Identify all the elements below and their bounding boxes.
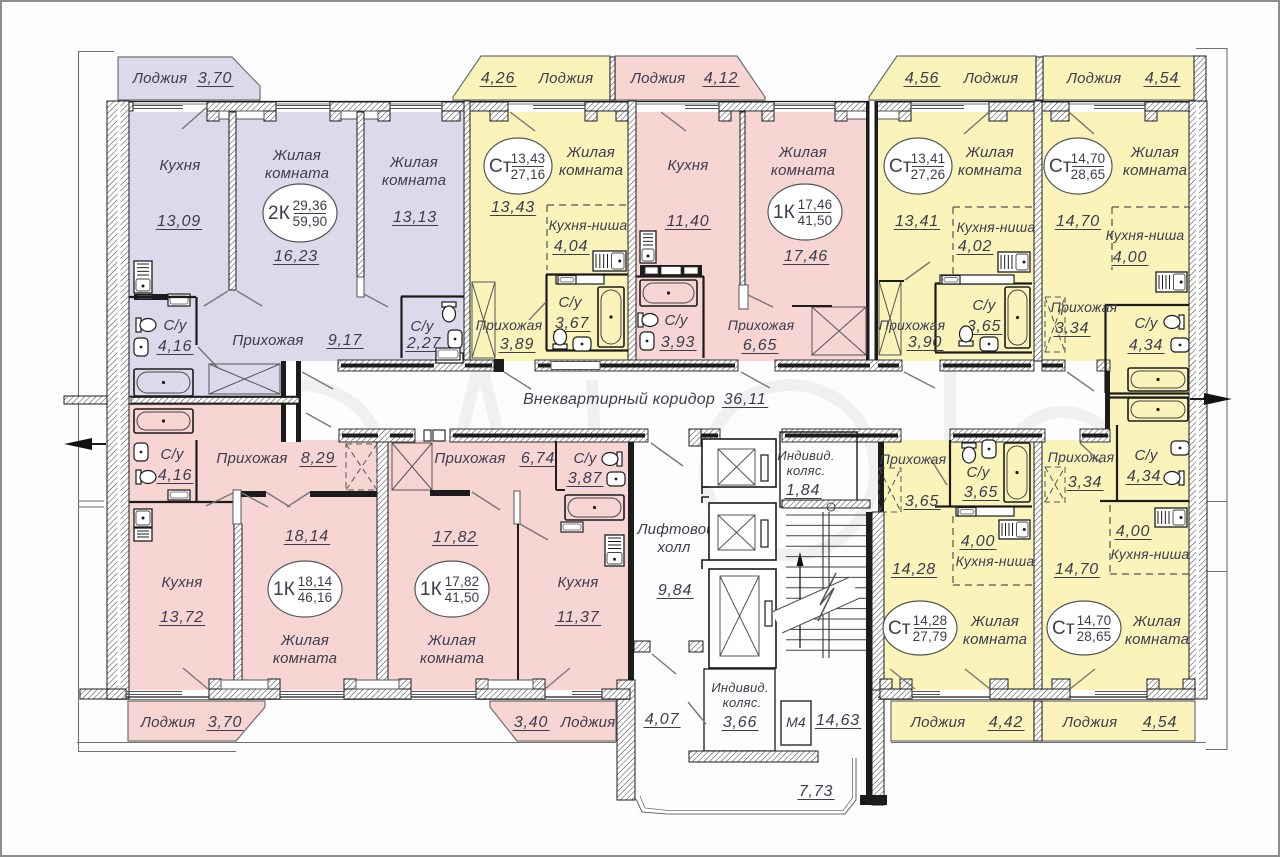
svg-text:Лоджия: Лоджия — [910, 714, 966, 731]
svg-text:4,26: 4,26 — [481, 70, 515, 87]
svg-text:С/у: С/у — [664, 312, 688, 329]
svg-text:3,89: 3,89 — [500, 336, 534, 353]
svg-text:28,65: 28,65 — [1077, 629, 1112, 644]
svg-text:Жилая: Жилая — [1132, 613, 1181, 630]
svg-text:Прихожая: Прихожая — [216, 450, 287, 467]
svg-text:Прихожая: Прихожая — [1048, 449, 1115, 465]
svg-text:комната: комната — [265, 165, 329, 182]
svg-text:Кухня: Кухня — [162, 574, 203, 591]
svg-text:комната: комната — [273, 650, 337, 667]
svg-text:4,07: 4,07 — [645, 711, 680, 728]
svg-text:комната: комната — [559, 162, 623, 179]
svg-text:4,56: 4,56 — [905, 70, 939, 87]
svg-text:1К: 1К — [420, 579, 442, 600]
svg-text:Кухня: Кухня — [668, 157, 709, 174]
svg-text:6,74: 6,74 — [521, 450, 555, 467]
svg-text:Жилая: Жилая — [778, 144, 827, 161]
svg-text:Лоджия: Лоджия — [1066, 70, 1122, 87]
svg-text:Кухня-ниша: Кухня-ниша — [1106, 227, 1185, 243]
svg-text:3,70: 3,70 — [208, 714, 242, 731]
svg-text:С/у: С/у — [573, 450, 597, 467]
svg-text:Прихожая: Прихожая — [879, 317, 946, 333]
svg-text:С/у: С/у — [558, 294, 582, 311]
svg-text:13,13: 13,13 — [393, 209, 437, 226]
svg-text:С/у: С/у — [1134, 315, 1158, 332]
svg-text:16,23: 16,23 — [274, 248, 318, 265]
svg-text:14,63: 14,63 — [816, 712, 860, 729]
svg-text:Кухня-ниша: Кухня-ниша — [549, 217, 628, 233]
svg-text:Прихожая: Прихожая — [728, 317, 795, 333]
svg-text:Кухня: Кухня — [160, 157, 201, 174]
svg-text:41,50: 41,50 — [445, 590, 480, 605]
svg-text:8,29: 8,29 — [301, 450, 335, 467]
svg-text:С/у: С/у — [966, 464, 990, 481]
svg-text:13,43: 13,43 — [491, 199, 535, 216]
svg-text:С/у: С/у — [160, 446, 184, 463]
svg-text:9,84: 9,84 — [658, 582, 692, 599]
svg-text:3,66: 3,66 — [723, 714, 757, 731]
svg-text:14,70: 14,70 — [1055, 561, 1099, 578]
svg-text:Кухня: Кухня — [558, 574, 599, 591]
svg-text:Лоджия: Лоджия — [630, 70, 686, 87]
svg-text:4,16: 4,16 — [158, 338, 192, 355]
svg-text:6,65: 6,65 — [743, 337, 777, 354]
svg-text:Жилая: Жилая — [427, 632, 476, 649]
svg-text:Индивид.: Индивид. — [777, 448, 834, 463]
svg-text:3,40: 3,40 — [514, 714, 548, 731]
svg-text:Прихожая: Прихожая — [1051, 299, 1118, 315]
svg-text:3,34: 3,34 — [1068, 474, 1102, 491]
svg-text:комната: комната — [958, 162, 1022, 179]
svg-text:С/у: С/у — [163, 317, 187, 334]
svg-text:13,41: 13,41 — [911, 151, 946, 166]
svg-text:Лоджия: Лоджия — [538, 70, 594, 87]
svg-text:Жилая: Жилая — [970, 613, 1019, 630]
svg-text:С/у: С/у — [1134, 447, 1158, 464]
svg-text:3,93: 3,93 — [661, 334, 695, 351]
svg-text:Жилая: Жилая — [965, 144, 1014, 161]
svg-text:27,26: 27,26 — [911, 167, 946, 182]
svg-text:41,50: 41,50 — [798, 213, 833, 228]
svg-text:1К: 1К — [273, 579, 295, 600]
svg-text:4,00: 4,00 — [1113, 249, 1147, 266]
svg-text:Лоджия: Лоджия — [560, 714, 616, 731]
svg-text:Ст: Ст — [1052, 618, 1075, 639]
svg-text:4,34: 4,34 — [1129, 337, 1163, 354]
svg-text:27,16: 27,16 — [511, 167, 546, 182]
svg-text:17,46: 17,46 — [784, 248, 828, 265]
svg-text:Жилая: Жилая — [389, 154, 438, 171]
svg-text:Жилая: Жилая — [280, 632, 329, 649]
svg-text:Ст: Ст — [888, 618, 911, 639]
svg-text:комната: комната — [771, 162, 835, 179]
svg-text:4,42: 4,42 — [989, 714, 1023, 731]
svg-text:Лоджия: Лоджия — [1062, 714, 1118, 731]
svg-text:Лоджия: Лоджия — [140, 714, 196, 731]
svg-text:13,72: 13,72 — [160, 609, 204, 626]
svg-text:Кухня-ниша: Кухня-ниша — [957, 219, 1036, 235]
svg-text:комната: комната — [382, 172, 446, 189]
svg-text:Кухня-ниша: Кухня-ниша — [956, 553, 1035, 569]
svg-text:2К: 2К — [268, 203, 290, 224]
svg-text:11,37: 11,37 — [557, 609, 600, 626]
svg-text:3,65: 3,65 — [905, 493, 939, 510]
svg-text:Лоджия: Лоджия — [132, 70, 188, 87]
svg-text:Индивид.: Индивид. — [711, 680, 768, 695]
svg-text:Ст: Ст — [1049, 156, 1072, 177]
svg-text:3,65: 3,65 — [964, 484, 998, 501]
svg-text:М4: М4 — [786, 714, 806, 730]
svg-text:Ст: Ст — [889, 156, 912, 177]
svg-text:коляс.: коляс. — [787, 463, 826, 478]
svg-text:3,87: 3,87 — [568, 470, 603, 487]
svg-text:17,82: 17,82 — [433, 529, 477, 546]
svg-text:С/у: С/у — [972, 297, 996, 314]
svg-text:1,84: 1,84 — [786, 482, 820, 499]
svg-text:17,82: 17,82 — [445, 574, 480, 589]
svg-text:Прихожая: Прихожая — [434, 450, 505, 467]
svg-text:Прихожая: Прихожая — [232, 332, 303, 349]
svg-text:Жилая: Жилая — [1130, 144, 1179, 161]
svg-text:комната: комната — [963, 631, 1027, 648]
svg-text:4,16: 4,16 — [158, 467, 192, 484]
svg-text:18,14: 18,14 — [298, 574, 333, 589]
svg-text:14,70: 14,70 — [1071, 151, 1106, 166]
svg-text:28,65: 28,65 — [1071, 167, 1106, 182]
svg-text:13,43: 13,43 — [511, 151, 546, 166]
svg-text:Ст: Ст — [489, 156, 512, 177]
svg-text:14,70: 14,70 — [1056, 213, 1100, 230]
svg-text:Жилая: Жилая — [566, 144, 615, 161]
svg-text:комната: комната — [1125, 631, 1189, 648]
svg-text:13,09: 13,09 — [157, 213, 201, 230]
svg-text:Лифтовой: Лифтовой — [636, 521, 715, 538]
svg-text:Внеквартирный коридор: Внеквартирный коридор — [523, 391, 715, 408]
svg-text:Кухня-ниша: Кухня-ниша — [1111, 546, 1190, 562]
svg-text:29,36: 29,36 — [293, 198, 328, 213]
svg-text:Жилая: Жилая — [272, 147, 321, 164]
svg-text:Лоджия: Лоджия — [963, 70, 1019, 87]
svg-text:4,02: 4,02 — [958, 238, 992, 255]
svg-text:Прихожая: Прихожая — [476, 317, 543, 333]
svg-text:18,14: 18,14 — [285, 528, 329, 545]
svg-text:46,16: 46,16 — [298, 590, 333, 605]
svg-text:4,54: 4,54 — [1143, 714, 1177, 731]
svg-text:комната: комната — [420, 650, 484, 667]
svg-text:4,00: 4,00 — [961, 533, 995, 550]
svg-text:4,54: 4,54 — [1145, 70, 1179, 87]
svg-text:С/у: С/у — [410, 318, 434, 335]
svg-text:холл: холл — [656, 539, 690, 556]
svg-text:4,34: 4,34 — [1127, 468, 1161, 485]
svg-text:59,90: 59,90 — [293, 214, 328, 229]
svg-text:4,00: 4,00 — [1116, 523, 1150, 540]
svg-text:14,28: 14,28 — [913, 613, 948, 628]
svg-text:3,70: 3,70 — [198, 70, 232, 87]
svg-text:14,70: 14,70 — [1077, 613, 1112, 628]
svg-text:4,04: 4,04 — [554, 238, 588, 255]
svg-text:27,79: 27,79 — [913, 629, 948, 644]
svg-text:3,90: 3,90 — [908, 334, 942, 351]
svg-text:11,40: 11,40 — [667, 213, 710, 230]
svg-text:комната: комната — [1123, 162, 1187, 179]
svg-text:4,12: 4,12 — [704, 70, 738, 87]
svg-text:коляс.: коляс. — [723, 695, 762, 710]
svg-text:14,28: 14,28 — [892, 561, 936, 578]
svg-text:17,46: 17,46 — [798, 197, 833, 212]
svg-text:7,73: 7,73 — [799, 783, 833, 800]
svg-text:36,11: 36,11 — [724, 391, 767, 408]
svg-text:13,41: 13,41 — [895, 213, 939, 230]
svg-text:3,34: 3,34 — [1055, 320, 1089, 337]
svg-text:1К: 1К — [773, 202, 795, 223]
svg-text:Прихожая: Прихожая — [880, 451, 947, 467]
svg-text:9,17: 9,17 — [328, 332, 363, 349]
